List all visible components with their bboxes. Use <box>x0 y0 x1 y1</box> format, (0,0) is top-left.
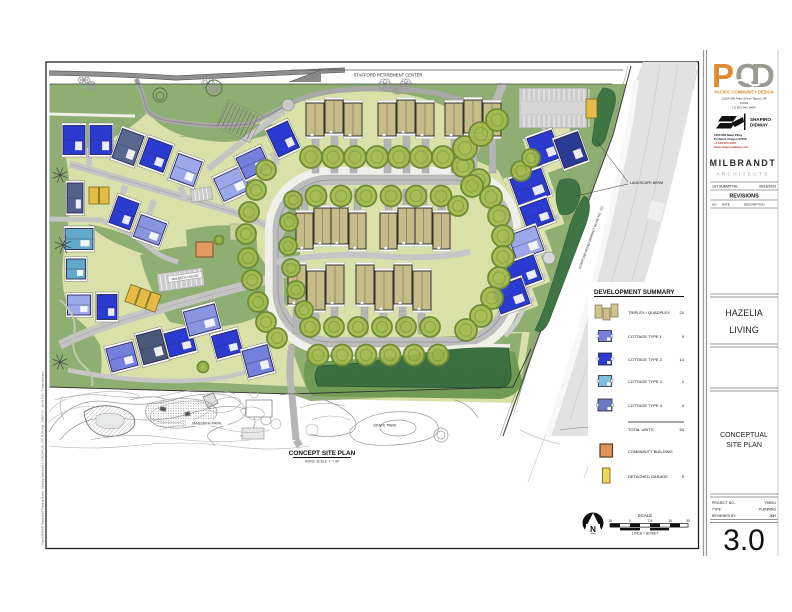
svg-text:COTTAGE TYPE 1: COTTAGE TYPE 1 <box>628 334 663 339</box>
svg-text:COTTAGE TYPE 2: COTTAGE TYPE 2 <box>628 357 663 362</box>
svg-text:MILBRANDT: MILBRANDT <box>710 158 777 168</box>
svg-text:53: 53 <box>680 427 685 432</box>
svg-text:15: 15 <box>668 519 672 523</box>
svg-text:24: 24 <box>680 310 685 315</box>
svg-text:PROJECT NO.:: PROJECT NO.: <box>712 501 736 505</box>
svg-text:7.5: 7.5 <box>648 519 653 523</box>
svg-text:ARCHITECTS: ARCHITECTS <box>716 172 769 177</box>
svg-text:[T] 503-941-9484: [T] 503-941-9484 <box>732 106 755 110</box>
svg-text:HAZELIA: HAZELIA <box>725 308 763 318</box>
svg-text:DATE: DATE <box>722 203 730 207</box>
svg-text:LANDSCAPE BERM: LANDSCAPE BERM <box>630 181 663 185</box>
svg-text:12564 SW Main Street Tigard, O: 12564 SW Main Street Tigard, OR <box>721 97 767 101</box>
svg-text:REVIEWED BY:: REVIEWED BY: <box>712 514 736 518</box>
svg-text:DETACHED GARAGE: DETACHED GARAGE <box>628 474 668 479</box>
svg-text:CONCEPT SITE PLAN: CONCEPT SITE PLAN <box>289 450 356 457</box>
svg-text:HORIZ. SCALE: 1" = 30': HORIZ. SCALE: 1" = 30' <box>305 460 340 464</box>
svg-text:TYPE:: TYPE: <box>712 508 722 512</box>
svg-text:06/18/2023: 06/18/2023 <box>759 185 776 189</box>
svg-text:TOTAL UNITS: TOTAL UNITS <box>628 427 654 432</box>
svg-text:97223: 97223 <box>740 101 749 105</box>
svg-text:LIVING: LIVING <box>729 325 759 335</box>
svg-text:SITE PLAN: SITE PLAN <box>726 442 762 449</box>
svg-text:www.shapirodidway.com: www.shapirodidway.com <box>713 145 749 149</box>
svg-text:15: 15 <box>608 519 612 523</box>
svg-text:COMMUNITY BUILDING: COMMUNITY BUILDING <box>628 449 673 454</box>
svg-text:JMH: JMH <box>769 514 777 518</box>
svg-text:COTTAGE TYPE 3: COTTAGE TYPE 3 <box>628 379 663 384</box>
svg-text:STAFFORD RETIREMENT CENTER: STAFFORD RETIREMENT CENTER <box>354 73 423 78</box>
svg-text:P: P <box>712 57 734 94</box>
svg-text:SHAPIRO: SHAPIRO <box>750 117 771 122</box>
svg-text:14: 14 <box>680 357 685 362</box>
svg-text:N: N <box>590 525 596 534</box>
svg-text:NO.: NO. <box>712 203 718 207</box>
svg-text:1ST SUBMITTAL:: 1ST SUBMITTAL: <box>712 185 739 189</box>
svg-text:TRIPLEX / QUADPLEX: TRIPLEX / QUADPLEX <box>628 310 670 315</box>
svg-text:DIDWAY: DIDWAY <box>750 123 768 128</box>
svg-text:1 INCH = 30 FEET: 1 INCH = 30 FEET <box>632 532 659 536</box>
svg-text:30: 30 <box>686 519 690 523</box>
svg-text:Y96001: Y96001 <box>764 501 776 505</box>
svg-text:REVISIONS: REVISIONS <box>729 194 759 200</box>
svg-text:SKATE PARK: SKATE PARK <box>373 424 397 428</box>
svg-text:D: D <box>751 57 775 94</box>
svg-text:CONCEPTUAL: CONCEPTUAL <box>720 432 768 439</box>
svg-text:COTTAGE TYPE 4: COTTAGE TYPE 4 <box>628 403 663 408</box>
svg-text:H:\proj\19\90439 Drawings\03 P: H:\proj\19\90439 Drawings\03 Planning\Sh… <box>41 371 45 545</box>
svg-text:0: 0 <box>629 519 631 523</box>
svg-text:RASSEKH PARK: RASSEKH PARK <box>192 422 222 426</box>
svg-text:SCALE: SCALE <box>638 513 652 518</box>
svg-text:PACIFIC COMMUNITY DESIGN: PACIFIC COMMUNITY DESIGN <box>714 90 773 95</box>
svg-text:PLANNING: PLANNING <box>759 508 777 512</box>
svg-text:3.0: 3.0 <box>723 524 765 557</box>
svg-text:DEVELOPMENT SUMMARY: DEVELOPMENT SUMMARY <box>594 289 675 296</box>
svg-text:DESCRIPTION: DESCRIPTION <box>744 203 765 207</box>
